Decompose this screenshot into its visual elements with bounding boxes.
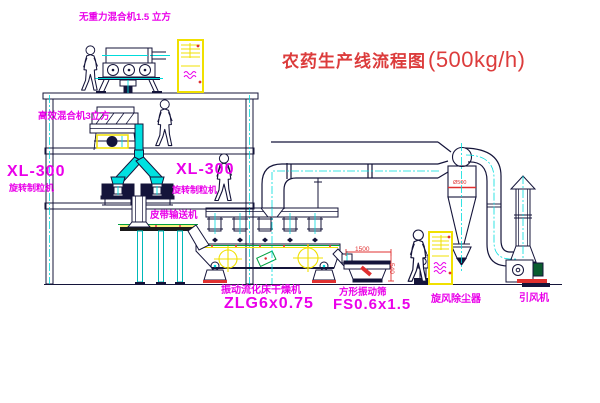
label-sieve-model: FS0.6x1.5: [333, 297, 411, 312]
label-fan: 引风机: [519, 294, 549, 304]
label-dryer-model: ZLG6x0.75: [224, 296, 314, 312]
control-cabinet-2: [429, 232, 452, 284]
gravity-free-mixer: [95, 48, 170, 94]
y-branch-pipe: [111, 150, 164, 186]
process-flow-diagram: Ø500: [0, 0, 600, 403]
control-cabinet-1: [178, 40, 203, 92]
label-gravity-mixer: 无重力混合机1.5 立方: [79, 13, 171, 23]
fluid-bed-dryer: [196, 208, 350, 284]
exhaust-duct: [262, 142, 451, 209]
diagram-title: 农药生产线流程图 (500kg/h): [282, 47, 525, 73]
dryer-vibrator-left: [203, 262, 227, 283]
fan-base: [517, 279, 547, 283]
label-granulator-mid-name: 旋转制粒机: [172, 186, 217, 195]
conveyor-legs: [135, 231, 185, 285]
sieve-length-dim: 1500: [355, 246, 370, 253]
person-second-floor: [156, 100, 172, 146]
person-top-floor: [82, 46, 98, 90]
label-high-eff-mixer: 高效混合机3立方: [38, 112, 110, 122]
title-capacity: (500kg/h): [428, 47, 525, 73]
granulator-left: [101, 184, 135, 205]
dryer-nameplate: [257, 251, 276, 266]
conveyor-discharge-chute: [188, 225, 209, 250]
dryer-inlet-funnel: [261, 208, 284, 217]
label-cyclone: 旋风除尘器: [431, 295, 481, 305]
induced-draft-fan: [506, 260, 550, 287]
label-granulator-left-model: XL-300: [7, 164, 65, 180]
title-text: 农药生产线流程图: [282, 47, 426, 72]
belt-conveyor: [118, 225, 209, 285]
cyclone-marking-text: Ø500: [453, 180, 466, 186]
fan-motor: [533, 263, 543, 276]
label-granulator-left-name: 旋转制粒机: [9, 184, 54, 193]
mixer-outlet-pipe: [135, 124, 143, 152]
square-vibrating-sieve: 1500 540: [342, 246, 395, 282]
cyclone-outlet-cap: [453, 148, 472, 167]
sieve-height-dim: 540: [388, 263, 395, 274]
label-granulator-mid-model: XL-300: [176, 162, 234, 178]
floor-beam-mid: [45, 148, 254, 154]
floor-beam-top: [43, 93, 258, 99]
label-belt-conveyor: 皮带输送机: [150, 211, 198, 221]
person-ground-floor: [408, 230, 426, 281]
